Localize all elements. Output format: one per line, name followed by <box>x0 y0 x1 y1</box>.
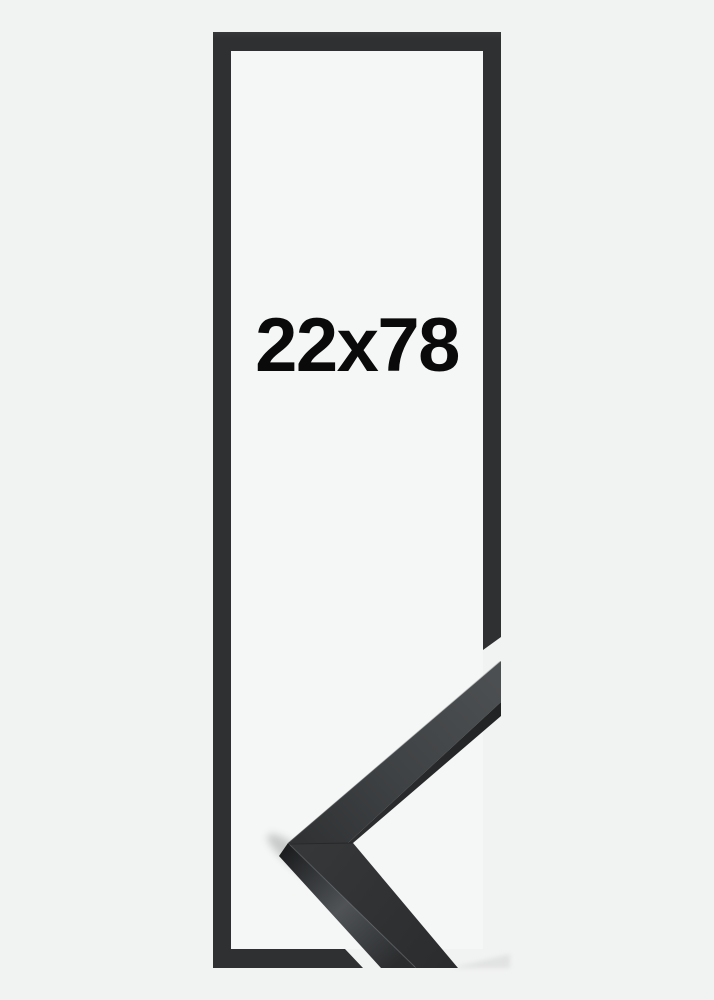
frame-size-label: 22x78 <box>255 303 459 388</box>
frame-top-bar-sheen <box>213 32 501 51</box>
frame-right-bar <box>483 51 501 650</box>
frame-product-illustration: 22x78 <box>0 0 714 1000</box>
product-image: 22x78 <box>0 0 714 1000</box>
